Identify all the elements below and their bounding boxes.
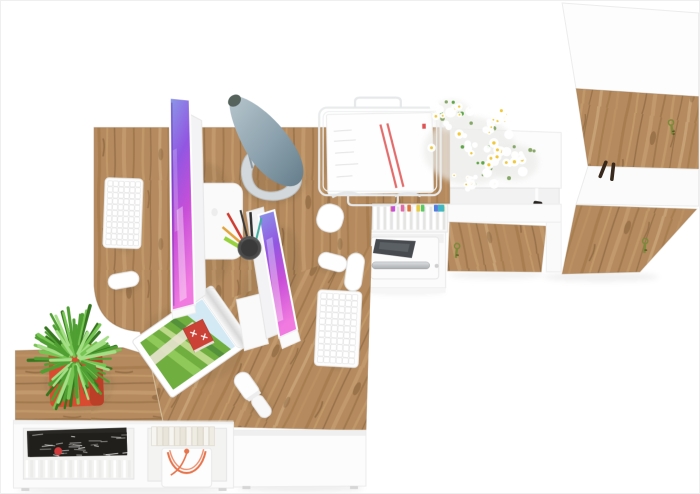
scene bbox=[1, 1, 699, 493]
book-row bbox=[152, 427, 215, 446]
gift-bag bbox=[162, 448, 212, 487]
cabinet-band bbox=[576, 166, 699, 206]
keyboard-2 bbox=[314, 290, 362, 368]
side-cabinet-door bbox=[448, 222, 547, 272]
printer-handle-bar bbox=[372, 262, 430, 269]
workspace-render bbox=[0, 0, 700, 494]
printer-button bbox=[435, 264, 439, 268]
magazine-badge bbox=[54, 447, 62, 455]
keyboard-1 bbox=[103, 178, 143, 249]
magazine-stack bbox=[27, 428, 129, 457]
printer bbox=[371, 237, 439, 279]
printer-cabinet bbox=[366, 232, 446, 293]
side-cabinet-front bbox=[448, 204, 562, 222]
side-cabinet-side bbox=[546, 222, 561, 272]
cabinet-door-upper bbox=[576, 89, 699, 170]
file-shelf bbox=[366, 204, 448, 232]
under-desk-cabinet bbox=[233, 430, 365, 489]
apple-logo-icon bbox=[211, 208, 217, 216]
bench-sideboard bbox=[13, 420, 233, 491]
cabinet-top-face bbox=[562, 3, 698, 97]
